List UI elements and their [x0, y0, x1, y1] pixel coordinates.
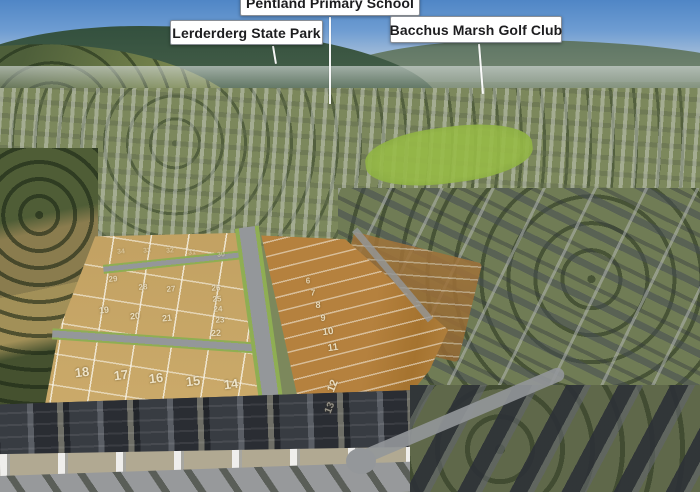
lot-number-8: 8	[315, 300, 320, 310]
lot-number-32: 32	[166, 247, 174, 255]
aerial-estate-photo: 3433323130292827262524232219202118171615…	[0, 0, 700, 492]
lot-number-28: 28	[138, 282, 148, 292]
lot-number-34: 34	[117, 248, 125, 256]
lot-number-27: 27	[166, 284, 176, 294]
cul-de-sac	[346, 448, 376, 474]
callout-lerderderg-state-park: Lerderderg State Park	[170, 20, 323, 45]
lot-number-24: 24	[213, 304, 222, 313]
bottom-right-houses	[410, 385, 700, 492]
lot-number-21: 21	[161, 313, 172, 324]
callout-label: Pentland Primary School	[246, 0, 414, 11]
leader-line-pentland	[329, 17, 331, 104]
lot-number-33: 33	[143, 247, 151, 255]
callout-bacchus-marsh-golf-club: Bacchus Marsh Golf Club	[390, 16, 562, 43]
lot-number-7: 7	[311, 289, 315, 298]
lot-number-9: 9	[320, 313, 325, 323]
lot-number-11: 11	[327, 342, 339, 354]
lot-number-23: 23	[215, 315, 224, 324]
lot-number-19: 19	[98, 305, 109, 316]
callout-pentland-primary-school: Pentland Primary School	[240, 0, 420, 16]
lot-number-30: 30	[217, 251, 225, 259]
callout-label: Lerderderg State Park	[172, 25, 320, 41]
lot-number-22: 22	[211, 328, 222, 339]
lot-number-16: 16	[148, 370, 164, 387]
lot-number-20: 20	[129, 311, 140, 322]
lot-number-10: 10	[322, 326, 335, 338]
lot-number-14: 14	[223, 376, 239, 393]
lot-number-17: 17	[113, 367, 129, 384]
lot-number-31: 31	[188, 249, 196, 257]
lot-number-29: 29	[108, 274, 118, 284]
lot-number-15: 15	[185, 373, 201, 390]
lot-number-18: 18	[74, 364, 90, 381]
lot-number-25: 25	[212, 294, 221, 303]
callout-label: Bacchus Marsh Golf Club	[390, 22, 563, 38]
lot-number-26: 26	[211, 283, 220, 292]
lot-number-6: 6	[306, 277, 310, 286]
